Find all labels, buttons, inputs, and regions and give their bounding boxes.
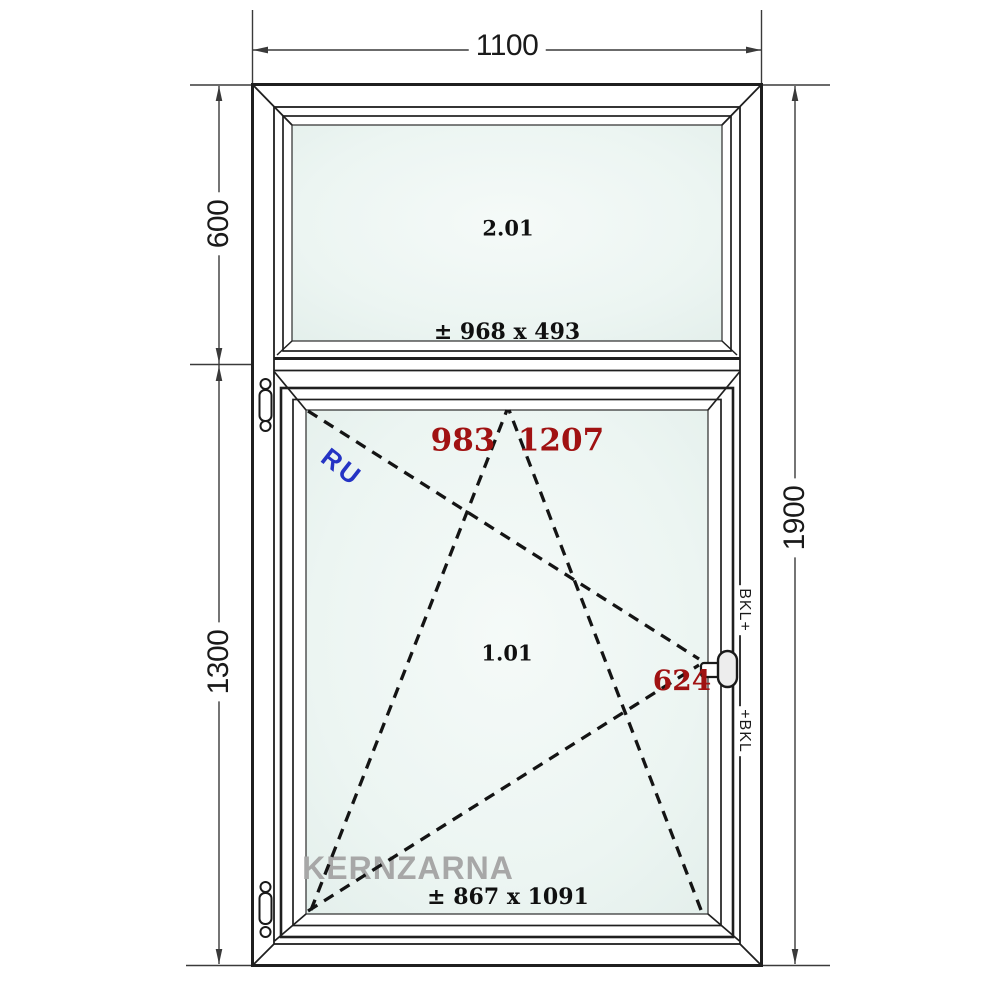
hinge-icon-bottom [260,882,272,937]
hinge-icon-top [260,379,272,431]
window-technical-drawing: KERNZARNA 1100 600 1300 1900 2.01 ± 968 … [0,0,1000,1000]
drawing-svg: KERNZARNA [0,0,1000,1000]
handle-height-value: 624 [653,667,711,695]
dimension-lower-height: 1300 [203,623,235,702]
hardware-label-top: BKL+ [736,585,752,635]
dimension-upper-height: 600 [203,193,235,256]
upper-sash-glass-size: ± 968 x 493 [434,321,580,343]
dimension-total-height: 1900 [779,479,811,558]
lower-sash-label: 1.01 [481,643,532,664]
hardware-label-bottom: +BKL [736,706,752,756]
dimension-total-width: 1100 [469,30,546,62]
lower-sash-width-value: 983 [431,426,496,457]
upper-sash-label: 2.01 [482,218,533,239]
lower-sash-height-value: 1207 [518,426,604,457]
lower-sash-glass-size: ± 867 x 1091 [427,886,589,908]
